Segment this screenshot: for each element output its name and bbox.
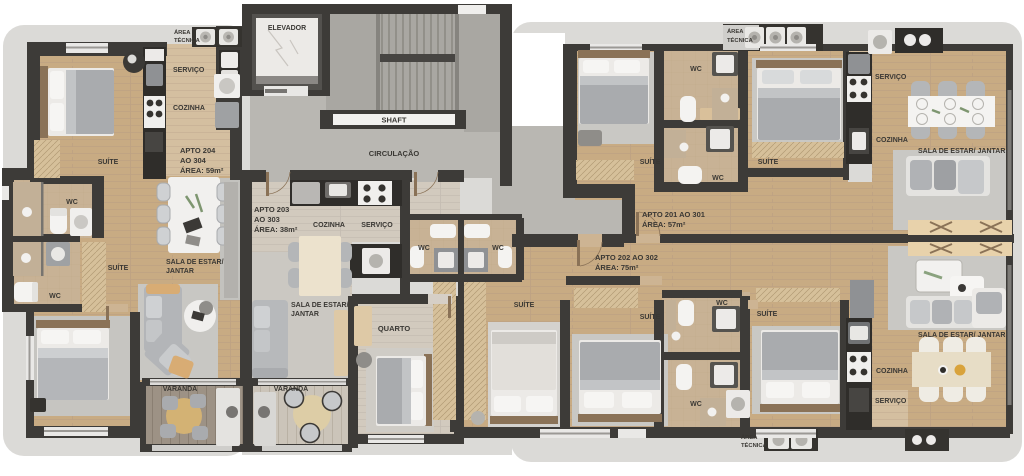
svg-text:SUÍTE: SUÍTE bbox=[640, 312, 661, 321]
svg-text:JANTAR: JANTAR bbox=[166, 268, 194, 275]
svg-text:COZINHA: COZINHA bbox=[313, 222, 345, 229]
svg-text:SERVIÇO: SERVIÇO bbox=[361, 222, 393, 229]
svg-text:SUÍTE: SUÍTE bbox=[640, 157, 661, 166]
svg-text:SUÍTE: SUÍTE bbox=[514, 300, 535, 309]
svg-text:ÁREA: 38m²: ÁREA: 38m² bbox=[254, 225, 298, 234]
svg-text:VARANDA: VARANDA bbox=[274, 386, 308, 393]
svg-text:WC: WC bbox=[716, 300, 728, 307]
svg-text:APTO 201 AO 301: APTO 201 AO 301 bbox=[642, 210, 705, 219]
svg-text:VARANDA: VARANDA bbox=[163, 386, 197, 393]
svg-text:TÉCNICA: TÉCNICA bbox=[741, 441, 768, 449]
svg-text:APTO 204: APTO 204 bbox=[180, 146, 216, 155]
svg-text:APTO 202 AO 302: APTO 202 AO 302 bbox=[595, 253, 658, 262]
svg-text:SERVIÇO: SERVIÇO bbox=[173, 67, 205, 74]
svg-text:WC: WC bbox=[66, 199, 78, 206]
svg-text:JANTAR: JANTAR bbox=[291, 311, 319, 318]
svg-text:WC: WC bbox=[418, 245, 430, 252]
svg-text:WC: WC bbox=[492, 245, 504, 252]
svg-text:TÉCNICA: TÉCNICA bbox=[174, 36, 201, 44]
svg-text:COZINHA: COZINHA bbox=[876, 368, 908, 375]
svg-text:WC: WC bbox=[49, 293, 61, 300]
svg-text:WC: WC bbox=[690, 401, 702, 408]
svg-text:SUÍTE: SUÍTE bbox=[757, 309, 778, 318]
svg-text:CIRCULAÇÃO: CIRCULAÇÃO bbox=[369, 149, 420, 158]
svg-text:SHAFT: SHAFT bbox=[382, 116, 407, 125]
svg-text:AO 304: AO 304 bbox=[180, 156, 207, 165]
svg-text:WC: WC bbox=[690, 66, 702, 73]
svg-text:SUÍTE: SUÍTE bbox=[758, 157, 779, 166]
svg-text:SERVIÇO: SERVIÇO bbox=[875, 398, 907, 405]
svg-text:ÁREA: 57m²: ÁREA: 57m² bbox=[642, 220, 686, 229]
svg-text:QUARTO: QUARTO bbox=[378, 324, 411, 333]
svg-text:ÁREA: ÁREA bbox=[174, 29, 191, 36]
svg-text:COZINHA: COZINHA bbox=[876, 137, 908, 144]
svg-text:ÁREA: 59m²: ÁREA: 59m² bbox=[180, 166, 224, 175]
svg-text:SALA DE ESTAR/ JANTAR: SALA DE ESTAR/ JANTAR bbox=[918, 148, 1005, 155]
svg-text:AO 303: AO 303 bbox=[254, 215, 280, 224]
svg-text:ÁREA: ÁREA bbox=[727, 28, 744, 35]
svg-text:SUÍTE: SUÍTE bbox=[98, 157, 119, 166]
svg-text:COZINHA: COZINHA bbox=[173, 105, 205, 112]
svg-text:ÁREA: 75m²: ÁREA: 75m² bbox=[595, 263, 639, 272]
svg-text:SALA DE ESTAR/: SALA DE ESTAR/ bbox=[166, 259, 224, 266]
svg-text:SUÍTE: SUÍTE bbox=[108, 263, 129, 272]
svg-text:APTO 203: APTO 203 bbox=[254, 205, 289, 214]
svg-text:ÁREA: ÁREA bbox=[741, 434, 758, 441]
svg-text:WC: WC bbox=[712, 175, 724, 182]
svg-text:SALA DE ESTAR/: SALA DE ESTAR/ bbox=[291, 302, 349, 309]
svg-text:SALA DE ESTAR/ JANTAR: SALA DE ESTAR/ JANTAR bbox=[918, 332, 1005, 339]
svg-text:TÉCNICA: TÉCNICA bbox=[727, 36, 754, 44]
svg-text:SERVIÇO: SERVIÇO bbox=[875, 74, 907, 81]
svg-text:ELEVADOR: ELEVADOR bbox=[268, 25, 306, 32]
